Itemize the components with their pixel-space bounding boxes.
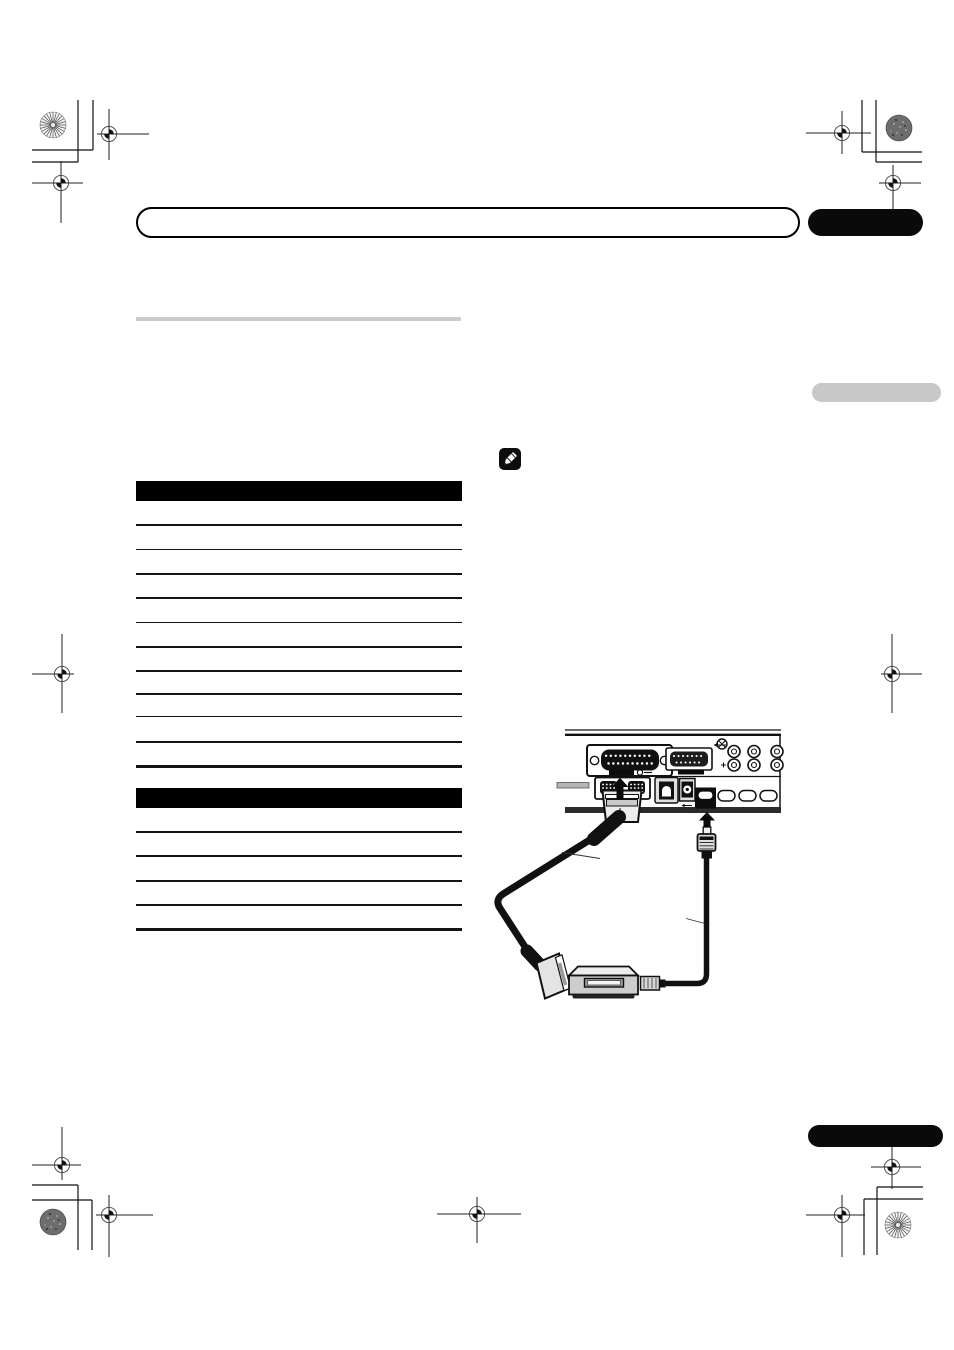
crop-marks xyxy=(32,100,923,1255)
insert-arrow-control xyxy=(699,812,715,827)
table-row-line xyxy=(136,549,462,551)
table-row-line xyxy=(136,880,462,882)
control-in-port xyxy=(695,788,716,809)
table-row-line xyxy=(136,524,462,526)
receiver-plug xyxy=(641,977,666,991)
footer-tab xyxy=(808,1125,943,1147)
table-header-bar xyxy=(136,788,462,808)
av1-scart-connector xyxy=(587,745,672,776)
coaxial-digital-out-port xyxy=(680,779,696,808)
table-row-line xyxy=(136,646,462,648)
section-divider xyxy=(136,317,461,321)
table-end-line xyxy=(136,765,462,768)
external-receiver xyxy=(569,967,638,999)
section-tab xyxy=(812,383,941,402)
control-cable xyxy=(665,857,707,984)
registration-mark-arms xyxy=(32,109,922,1257)
note-icon xyxy=(499,448,521,470)
panel-screw xyxy=(717,739,727,749)
header-tab xyxy=(808,209,923,236)
scart-cable xyxy=(498,836,596,953)
table-row-line xyxy=(136,831,462,833)
table-row-line xyxy=(136,693,462,695)
scart-plug-lower xyxy=(527,951,571,999)
control-minijack-plug xyxy=(698,827,716,859)
av-output-scart-connector xyxy=(666,748,712,775)
pencil-icon xyxy=(499,448,521,470)
table-row-line xyxy=(136,741,462,743)
optical-digital-out-port xyxy=(655,778,678,804)
halftone-dots xyxy=(40,112,912,1238)
table-header-bar xyxy=(136,481,462,501)
table-row-line xyxy=(136,573,462,575)
table-row-line xyxy=(136,622,462,624)
page-title-bar xyxy=(136,207,800,238)
registration-marks xyxy=(53,125,900,1222)
table-row-line xyxy=(136,716,462,718)
table-end-line xyxy=(136,928,462,931)
table-row-line xyxy=(136,670,462,672)
manual-page xyxy=(0,0,954,1350)
control-cable-label-line xyxy=(686,919,705,924)
print-marks xyxy=(0,0,954,1350)
table-row-line xyxy=(136,855,462,857)
connection-diagram xyxy=(440,715,800,1020)
table-row-line xyxy=(136,904,462,906)
panel-slots xyxy=(718,791,777,802)
table-row-line xyxy=(136,597,462,599)
